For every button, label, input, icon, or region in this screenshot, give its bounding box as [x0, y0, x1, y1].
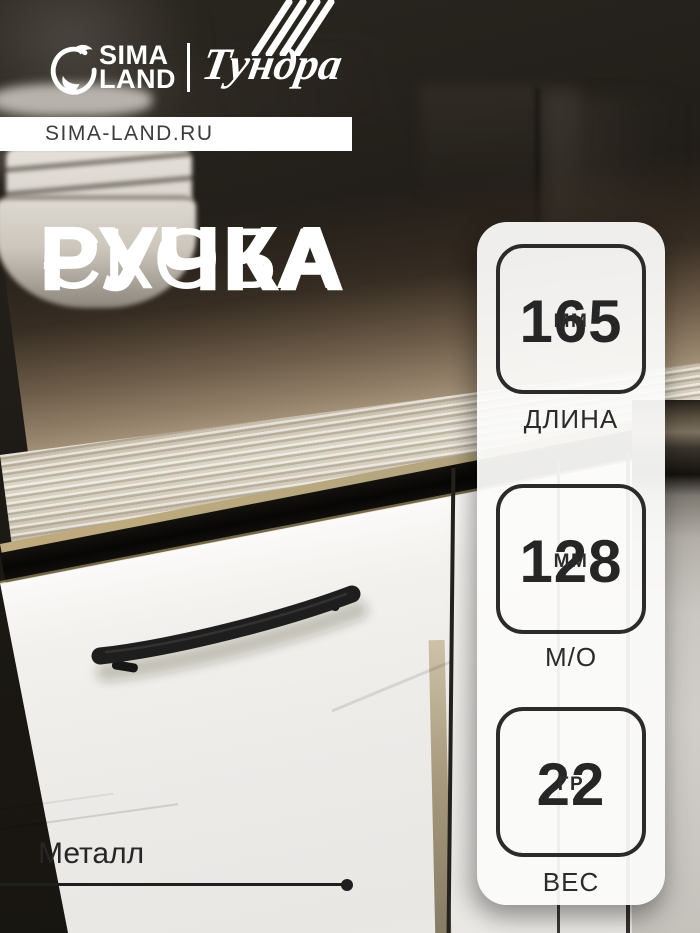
spec-hole-spacing-label: М/О — [477, 642, 665, 673]
sima-land-bird-icon — [44, 42, 98, 98]
cabinet-handle — [78, 568, 378, 693]
title-line-2: СКОБА — [40, 218, 335, 301]
spec-panel: 165 ММ ДЛИНА 128 ММ М/О 22 ГР ВЕС — [477, 222, 665, 905]
brand-divider — [187, 43, 190, 92]
sima-land-logo-text: SIMA LAND — [99, 44, 176, 92]
spec-card-length: 165 ММ — [496, 244, 646, 394]
material-pointer-dot — [341, 879, 353, 891]
brand-header: SIMA LAND Тундра — [0, 0, 420, 117]
spec-length-label: ДЛИНА — [477, 404, 665, 435]
spec-hole-spacing-unit: ММ — [554, 551, 589, 573]
spec-weight-label: ВЕС — [477, 867, 665, 898]
product-promo-card: SIMA LAND Тундра SIMA-LAND.RU РУЧКА- СКО… — [0, 0, 700, 933]
spec-weight-unit: ГР — [558, 774, 584, 796]
land-word: LAND — [99, 68, 176, 92]
spec-card-hole-spacing: 128 ММ — [496, 484, 646, 634]
material-pointer-line — [0, 883, 347, 886]
spec-length-unit: ММ — [554, 311, 589, 333]
spec-card-weight: 22 ГР — [496, 707, 646, 857]
site-bar: SIMA-LAND.RU — [0, 117, 352, 151]
site-url: SIMA-LAND.RU — [45, 122, 214, 146]
tundra-logo-text: Тундра — [198, 38, 377, 90]
material-label: Металл — [38, 837, 144, 871]
